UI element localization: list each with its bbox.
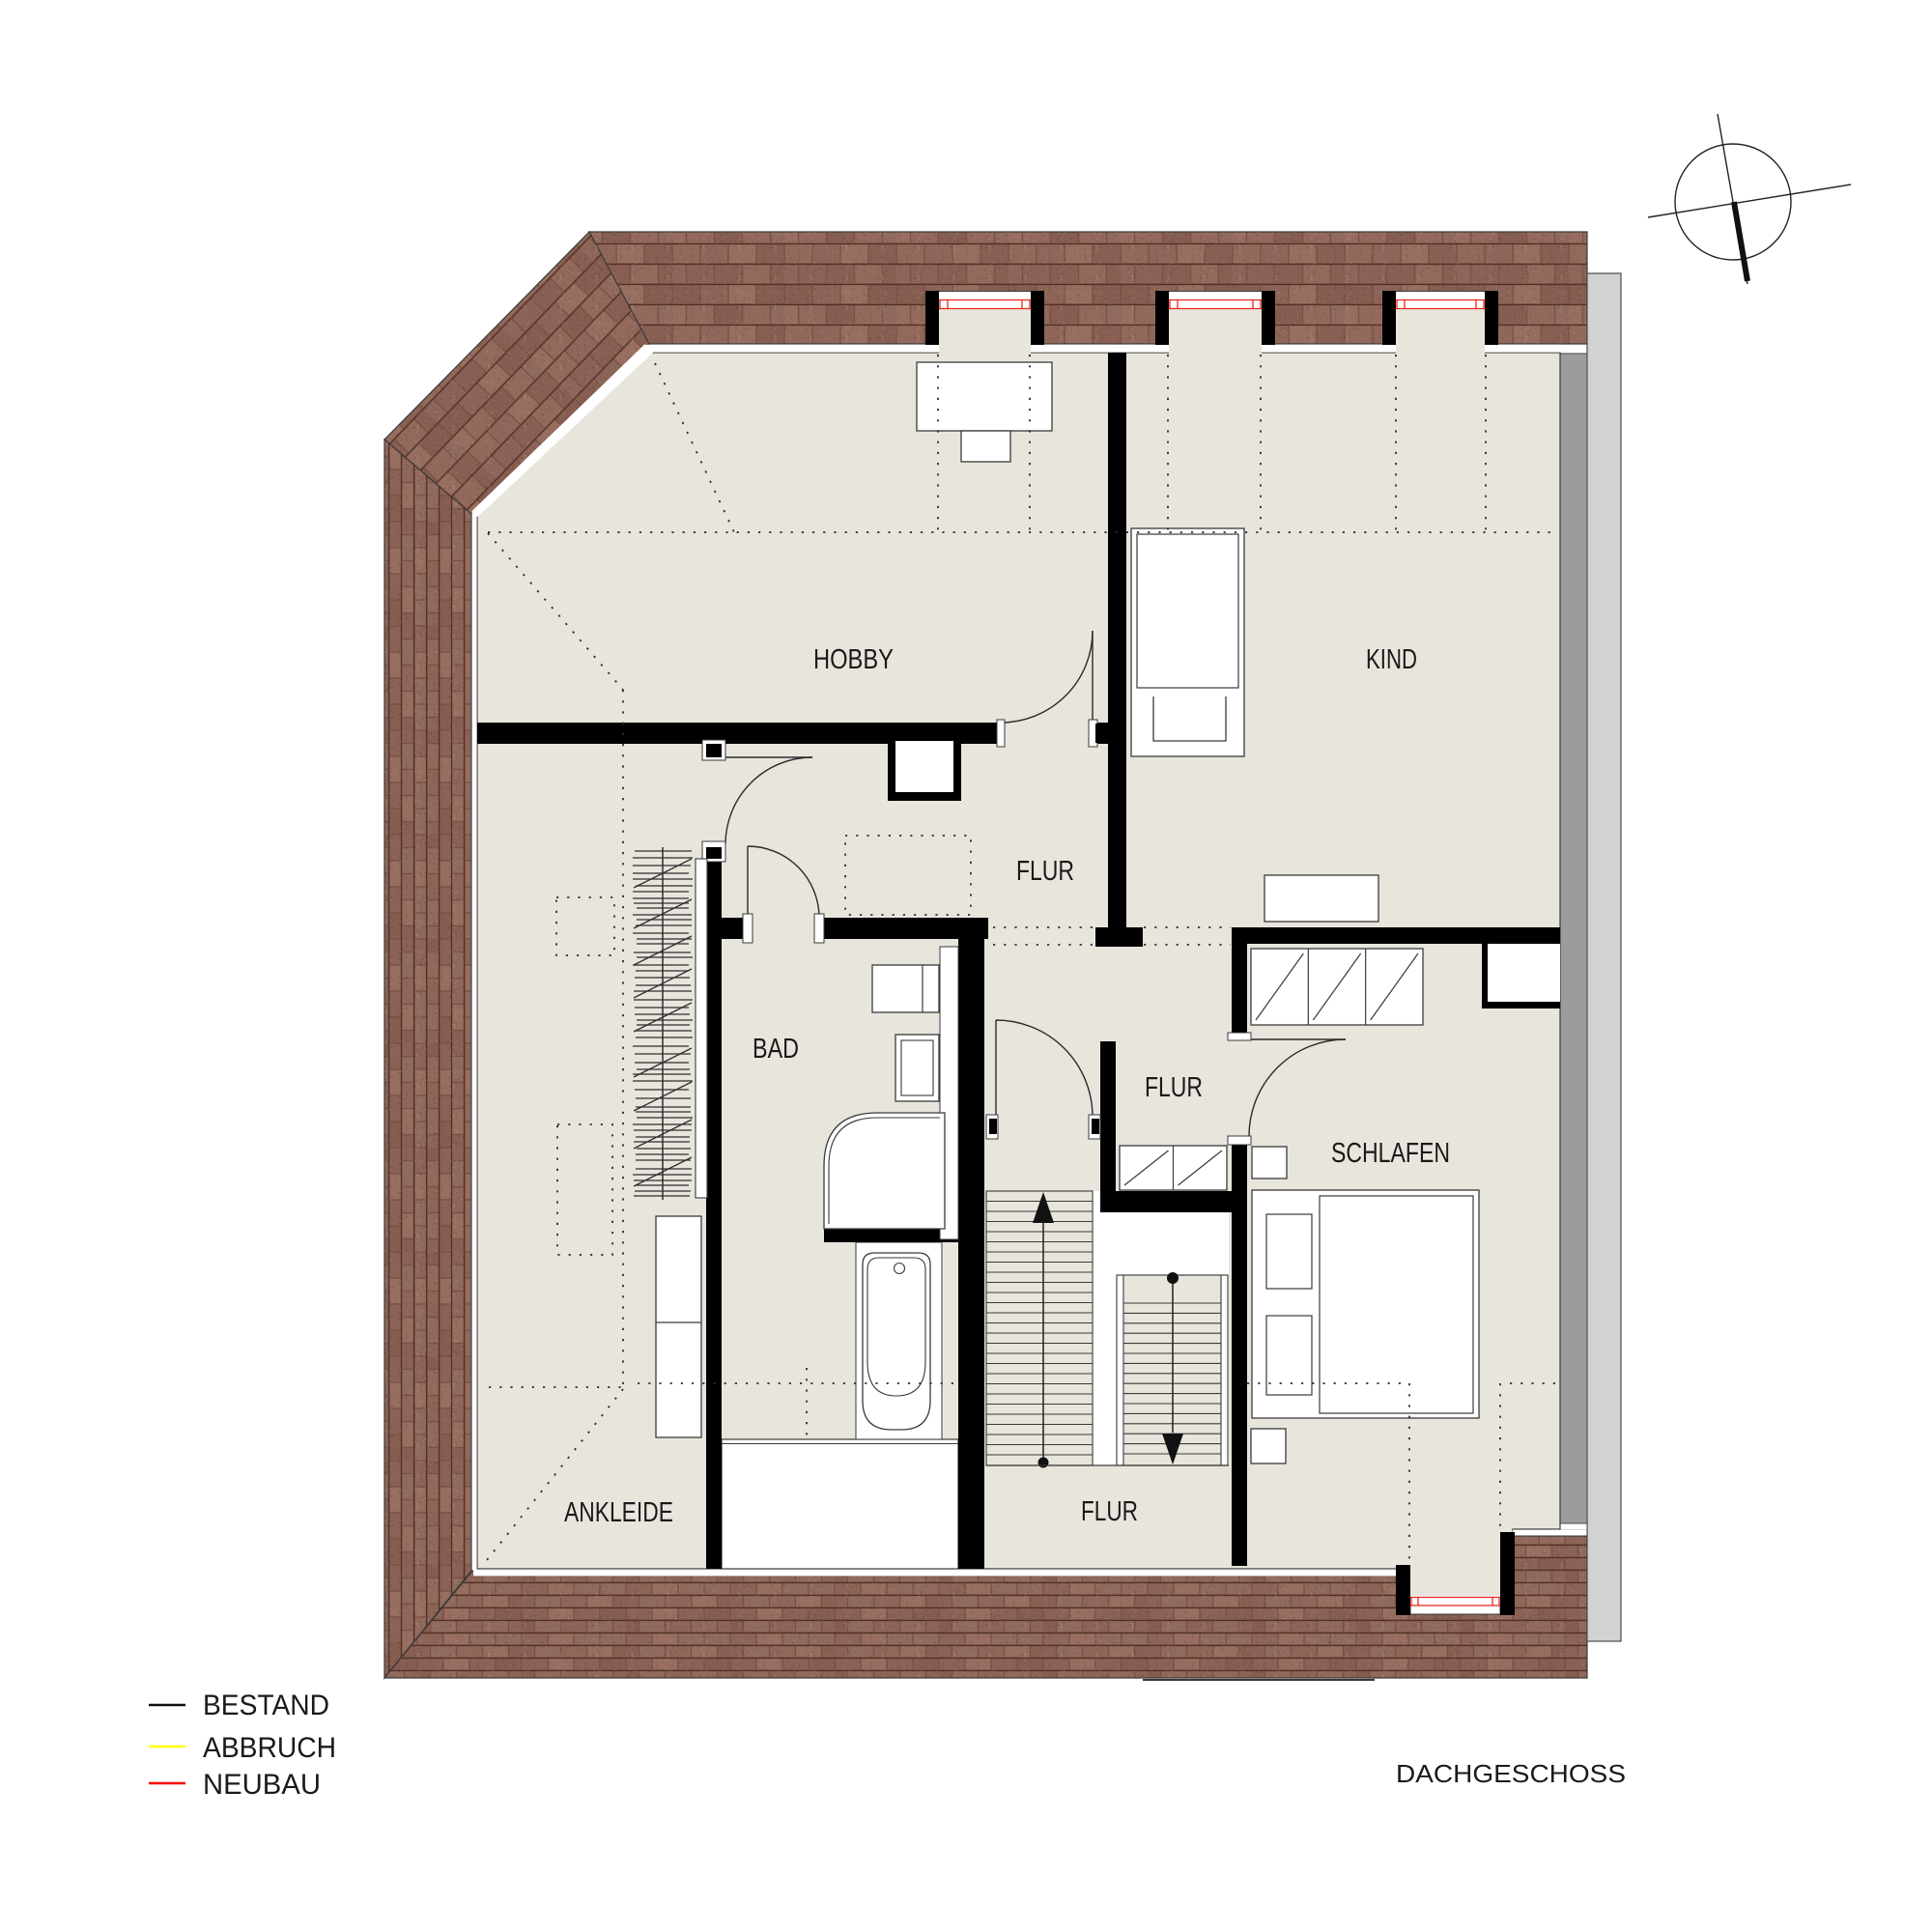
svg-text:DACHGESCHOSS: DACHGESCHOSS <box>1396 1759 1626 1788</box>
svg-text:FLUR: FLUR <box>1145 1072 1203 1103</box>
svg-text:BAD: BAD <box>753 1034 799 1065</box>
svg-text:NEUBAU: NEUBAU <box>203 1769 321 1801</box>
svg-text:KIND: KIND <box>1366 644 1417 675</box>
svg-text:BESTAND: BESTAND <box>203 1690 329 1721</box>
svg-text:FLUR: FLUR <box>1016 856 1074 887</box>
svg-text:FLUR: FLUR <box>1081 1496 1138 1527</box>
svg-text:SCHLAFEN: SCHLAFEN <box>1331 1138 1450 1169</box>
svg-text:ANKLEIDE: ANKLEIDE <box>564 1497 673 1528</box>
svg-text:HOBBY: HOBBY <box>813 644 894 675</box>
svg-text:ABBRUCH: ABBRUCH <box>203 1732 336 1764</box>
